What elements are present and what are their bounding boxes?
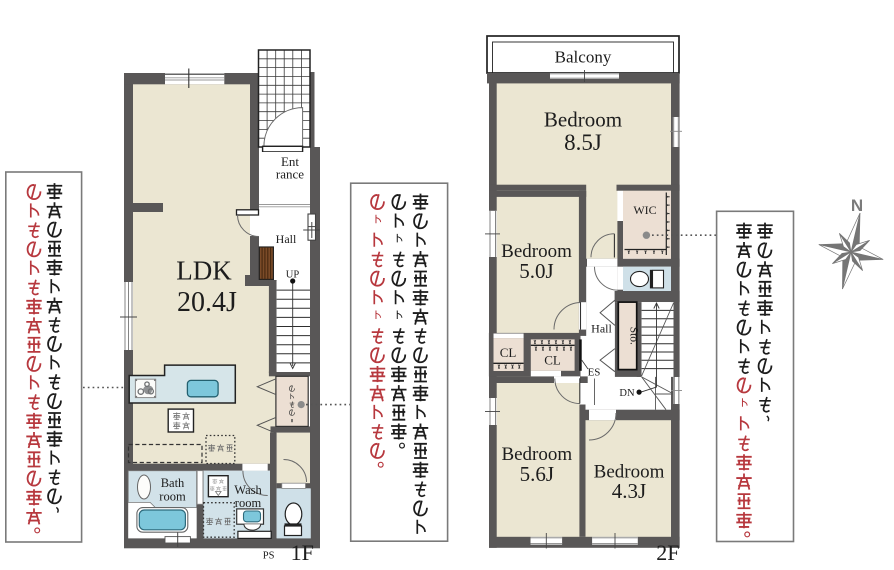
svg-text:5.0J: 5.0J	[519, 259, 553, 283]
svg-text:Bath: Bath	[161, 476, 185, 490]
svg-text:1F: 1F	[291, 540, 314, 565]
svg-text:LDK: LDK	[176, 256, 232, 286]
svg-text:DN: DN	[619, 388, 635, 399]
svg-text:Wash: Wash	[234, 483, 262, 497]
svg-text:room: room	[159, 490, 186, 504]
svg-text:WIC: WIC	[633, 203, 656, 217]
svg-text:4.3J: 4.3J	[612, 479, 646, 503]
svg-text:room: room	[235, 496, 262, 510]
svg-text:Sto.: Sto.	[628, 327, 640, 345]
svg-text:PS: PS	[263, 551, 275, 562]
svg-text:Hall: Hall	[591, 322, 612, 336]
svg-text:N: N	[851, 196, 863, 215]
svg-text:Hall: Hall	[276, 232, 297, 246]
svg-text:ES: ES	[588, 367, 601, 379]
svg-text:UP: UP	[286, 270, 300, 281]
svg-text:rance: rance	[276, 167, 304, 182]
svg-text:20.4J: 20.4J	[177, 287, 237, 318]
svg-text:Balcony: Balcony	[555, 48, 612, 67]
svg-text:CL: CL	[544, 353, 561, 368]
svg-text:CL: CL	[500, 345, 517, 360]
svg-text:8.5J: 8.5J	[564, 130, 602, 155]
svg-text:Bedroom: Bedroom	[544, 108, 622, 132]
svg-text:5.6J: 5.6J	[520, 462, 554, 486]
svg-text:2F: 2F	[656, 540, 679, 565]
